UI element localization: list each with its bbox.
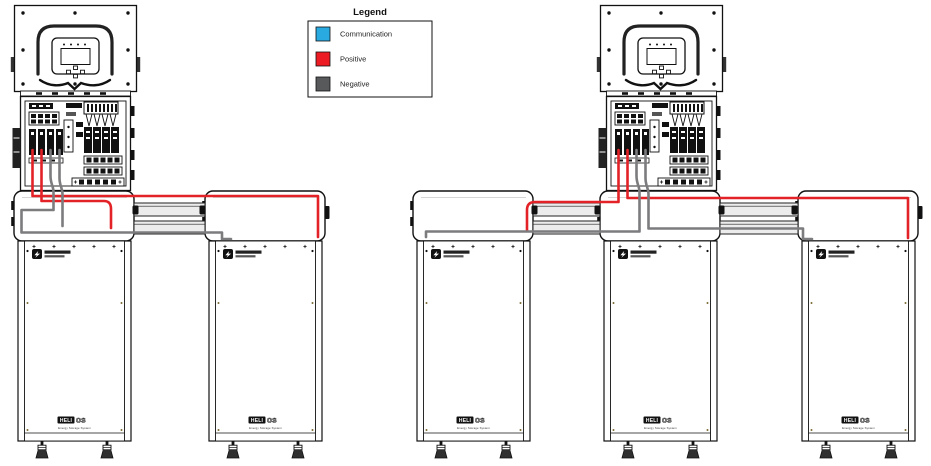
- legend-label-positive: Positive: [340, 55, 366, 64]
- rail-bolt: [792, 206, 798, 215]
- side-connector: [918, 206, 923, 219]
- rail-bolt: [133, 206, 139, 215]
- side-connector: [325, 206, 330, 219]
- helios-label-primary: HELI: [251, 418, 264, 424]
- rail-upper: [533, 203, 600, 216]
- inverter-left: [11, 6, 140, 191]
- legend-swatch-positive: [316, 52, 330, 66]
- rail-bolt: [719, 206, 725, 215]
- inverter-right: [597, 6, 726, 191]
- legend: Legend Communication Positive Negative: [308, 7, 432, 97]
- helios-label-secondary: OS: [662, 417, 672, 424]
- product-labels: HELI OS Energy Storage System HELI OS En…: [58, 417, 876, 431]
- helios-label-tagline: Energy Storage System: [457, 426, 490, 430]
- wiring-diagram: HELI OS Energy Storage System HELI OS En…: [0, 0, 931, 466]
- helios-label-primary: HELI: [60, 418, 73, 424]
- rail-bolt: [532, 206, 538, 215]
- wiring-diagram-page: HELI OS Energy Storage System HELI OS En…: [0, 0, 931, 466]
- helios-label-secondary: OS: [267, 417, 277, 424]
- interconnect-rails: [133, 203, 206, 234]
- legend-label-negative: Negative: [340, 80, 370, 89]
- legend-label-communication: Communication: [340, 30, 392, 39]
- helios-label-secondary: OS: [76, 417, 86, 424]
- rail-upper: [720, 203, 798, 216]
- system-two-batteries: [11, 6, 330, 459]
- helios-label-primary: HELI: [459, 418, 472, 424]
- rail-bolt: [200, 206, 206, 215]
- helios-label-tagline: Energy Storage System: [644, 426, 677, 430]
- rail-upper: [134, 203, 205, 216]
- helios-label-tagline: Energy Storage System: [842, 426, 875, 430]
- legend-swatch-negative: [316, 77, 330, 91]
- legend-swatch-communication: [316, 27, 330, 41]
- rail-bolt: [595, 206, 601, 215]
- helios-label-tagline: Energy Storage System: [58, 426, 91, 430]
- legend-title: Legend: [353, 7, 387, 18]
- helios-label-primary: HELI: [844, 418, 857, 424]
- helios-label-secondary: OS: [860, 417, 870, 424]
- helios-label-secondary: OS: [475, 417, 485, 424]
- interconnect-rails: [532, 203, 601, 234]
- helios-label-primary: HELI: [646, 418, 659, 424]
- helios-label-tagline: Energy Storage System: [249, 426, 282, 430]
- system-three-batteries: [410, 6, 922, 459]
